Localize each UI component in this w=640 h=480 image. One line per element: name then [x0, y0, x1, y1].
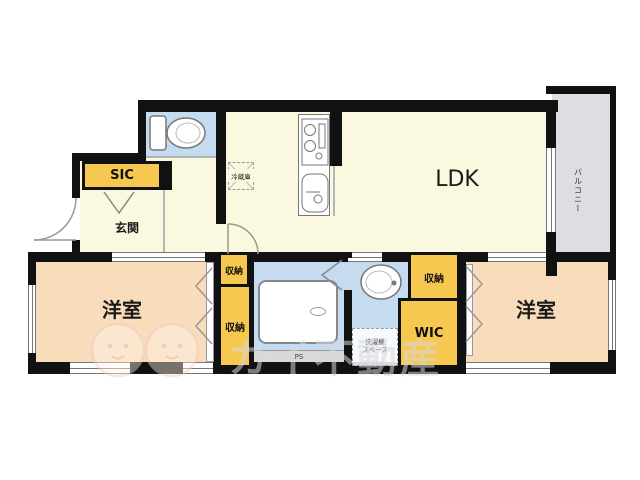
entrance-door-arc — [34, 198, 76, 240]
stove-icon — [302, 119, 328, 165]
toilet-icon — [150, 116, 205, 150]
floor-plan: SIC 収納 収納 収納 WIC 洗濯機 スペース — [0, 0, 640, 480]
bath-door-mark — [322, 260, 342, 290]
label-bedroom-right: 洋室 — [466, 294, 606, 322]
hall-ldk-door-arc — [228, 224, 258, 254]
sink-icon — [302, 174, 328, 212]
watermark-text: カイ不動産 — [228, 326, 443, 384]
label-balcony: バルコニー — [570, 146, 586, 234]
label-entrance: 玄関 — [92, 219, 162, 235]
label-ldk: LDK — [397, 164, 517, 194]
closet-bifold-left — [196, 268, 212, 344]
label-bedroom-left: 洋室 — [52, 294, 192, 322]
sic-door-mark — [104, 192, 134, 213]
watermark-logo — [92, 324, 198, 376]
label-refrigerator: 冷蔵庫 — [227, 169, 255, 182]
fixtures-overlay — [0, 0, 640, 480]
washbasin-icon — [361, 265, 401, 299]
